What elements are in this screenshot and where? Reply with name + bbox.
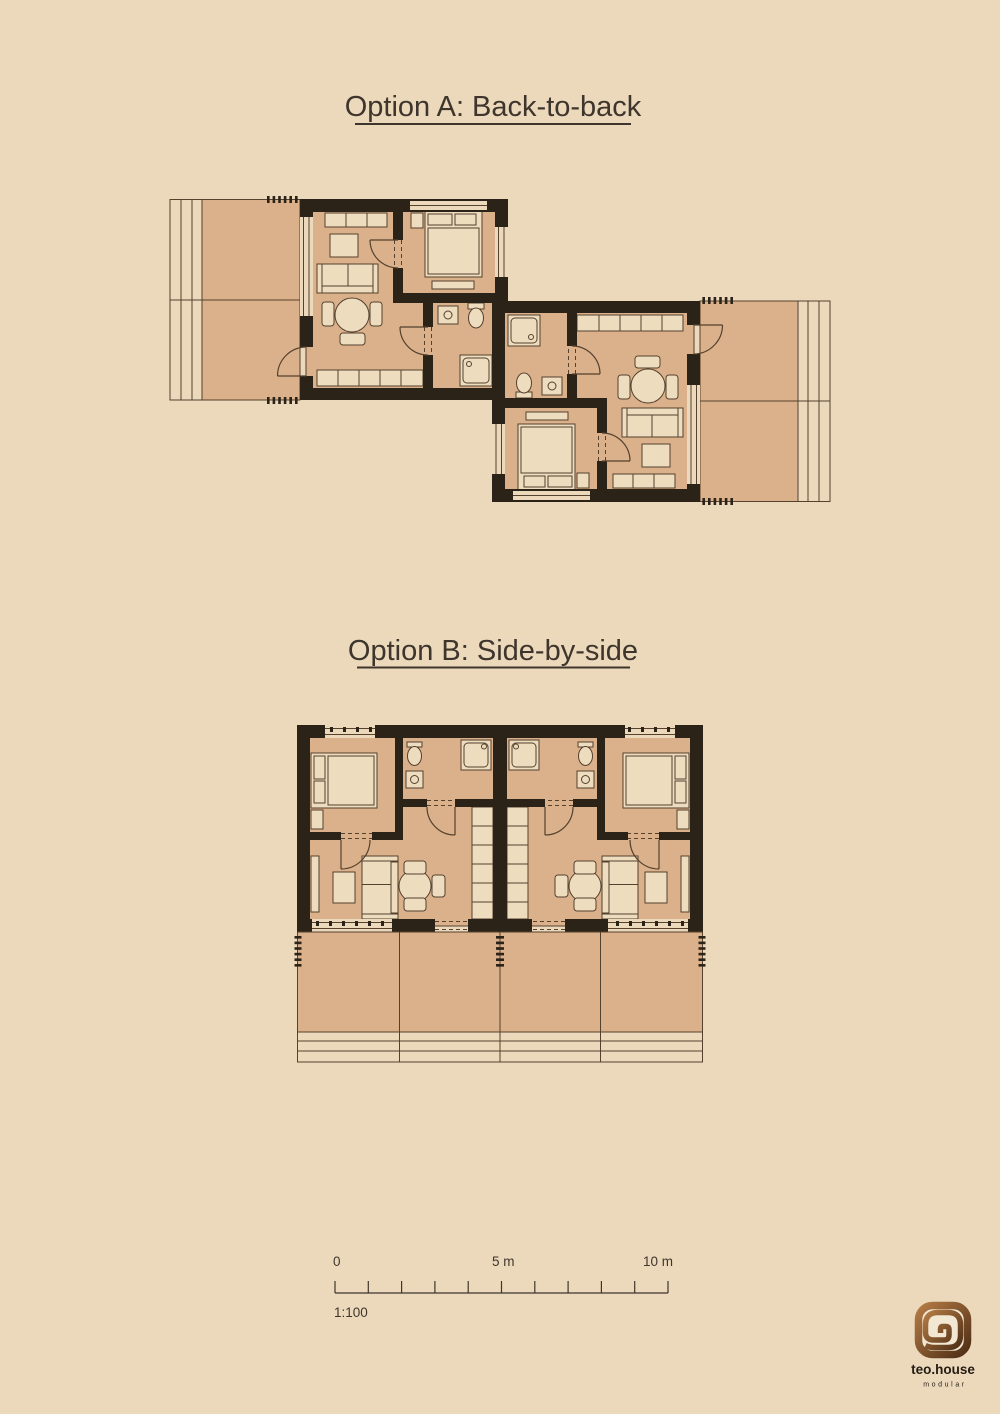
scale-ratio-label: 1:100 <box>334 1305 368 1320</box>
scale-mid-label: 5 m <box>492 1254 515 1269</box>
logo-name: teo.house <box>911 1362 975 1377</box>
poster-canvas: Option A: Back-to-back Option B: Side-by… <box>0 0 1000 1414</box>
plan-option-a: Option A: Back-to-back <box>170 91 830 505</box>
scale-start-label: 0 <box>333 1254 341 1269</box>
scale-ticks <box>335 1281 668 1293</box>
option-a-title: Option A: Back-to-back <box>345 91 642 123</box>
logo-tagline: modular <box>923 1382 967 1389</box>
plan-option-b: Option B: Side-by-side <box>295 635 706 1062</box>
logo: teo.house modular <box>911 1306 975 1389</box>
option-b-title: Option B: Side-by-side <box>348 635 638 667</box>
scale-bar: 0 5 m 10 m 1:100 <box>333 1254 673 1320</box>
unit-b2 <box>497 725 706 1062</box>
square-spiral-logo-icon <box>919 1306 968 1355</box>
unit-a2 <box>492 297 830 505</box>
poster: Option A: Back-to-back Option B: Side-by… <box>0 0 1000 1414</box>
unit-b1 <box>295 725 504 1062</box>
unit-a1 <box>170 196 508 404</box>
scale-end-label: 10 m <box>643 1254 673 1269</box>
